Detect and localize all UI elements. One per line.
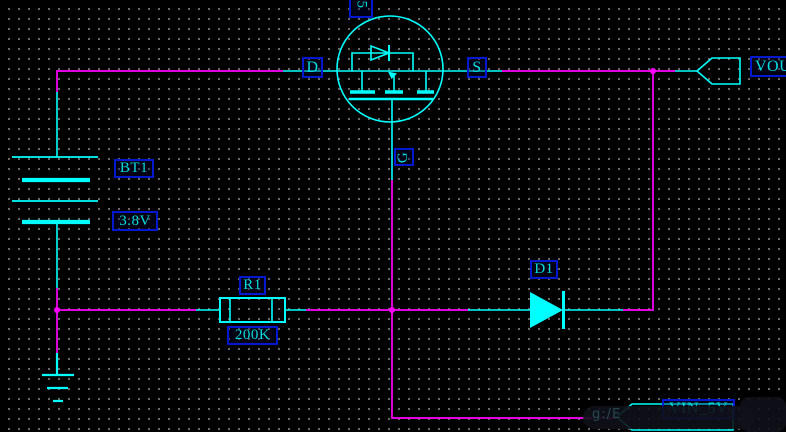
- ground-symbol[interactable]: [42, 353, 74, 401]
- diode-symbol[interactable]: [468, 291, 623, 329]
- wire-gate-to-vin[interactable]: [392, 180, 616, 418]
- watermark-blob: [740, 397, 786, 432]
- schematic-canvas: BT1 3.8V R1 200K D1 D S G 5 VOUT VIN_5V …: [0, 0, 786, 432]
- diode-triangle: [530, 292, 563, 328]
- resistor-value-label[interactable]: 200K: [227, 326, 278, 345]
- mosfet-body-circle: [337, 16, 443, 122]
- junction-dot: [54, 307, 60, 313]
- battery-symbol[interactable]: [12, 92, 98, 288]
- mosfet-top-label[interactable]: 5: [349, 0, 373, 18]
- mosfet-pin-gate-text: G: [397, 151, 412, 162]
- watermark-text: g:/E: [592, 407, 621, 422]
- port-vout-label[interactable]: VOUT: [750, 56, 786, 77]
- diode-designator-label[interactable]: D1: [530, 260, 558, 279]
- mosfet-pin-drain-label[interactable]: D: [302, 57, 323, 78]
- battery-designator-label[interactable]: BT1: [114, 159, 154, 178]
- battery-value-label[interactable]: 3.8V: [112, 211, 158, 231]
- resistor-designator-label[interactable]: R1: [239, 276, 266, 295]
- wire-net[interactable]: [57, 71, 675, 418]
- mosfet-pin-source-label[interactable]: S: [467, 57, 487, 78]
- wire-battery-to-drain[interactable]: [57, 71, 283, 92]
- junction-dot: [389, 307, 395, 313]
- mosfet-pin-gate-label[interactable]: G: [394, 148, 414, 166]
- mosfet-symbol[interactable]: [283, 16, 502, 180]
- port-vout-symbol[interactable]: [675, 58, 740, 84]
- resistor-symbol[interactable]: [196, 298, 306, 322]
- mosfet-top-label-text: 5: [354, 1, 369, 9]
- mosfet-bulk-arrow: [388, 72, 397, 80]
- junction-dot: [650, 68, 656, 74]
- wire-port-to-diode[interactable]: [623, 71, 653, 310]
- junction-dots: [54, 68, 656, 313]
